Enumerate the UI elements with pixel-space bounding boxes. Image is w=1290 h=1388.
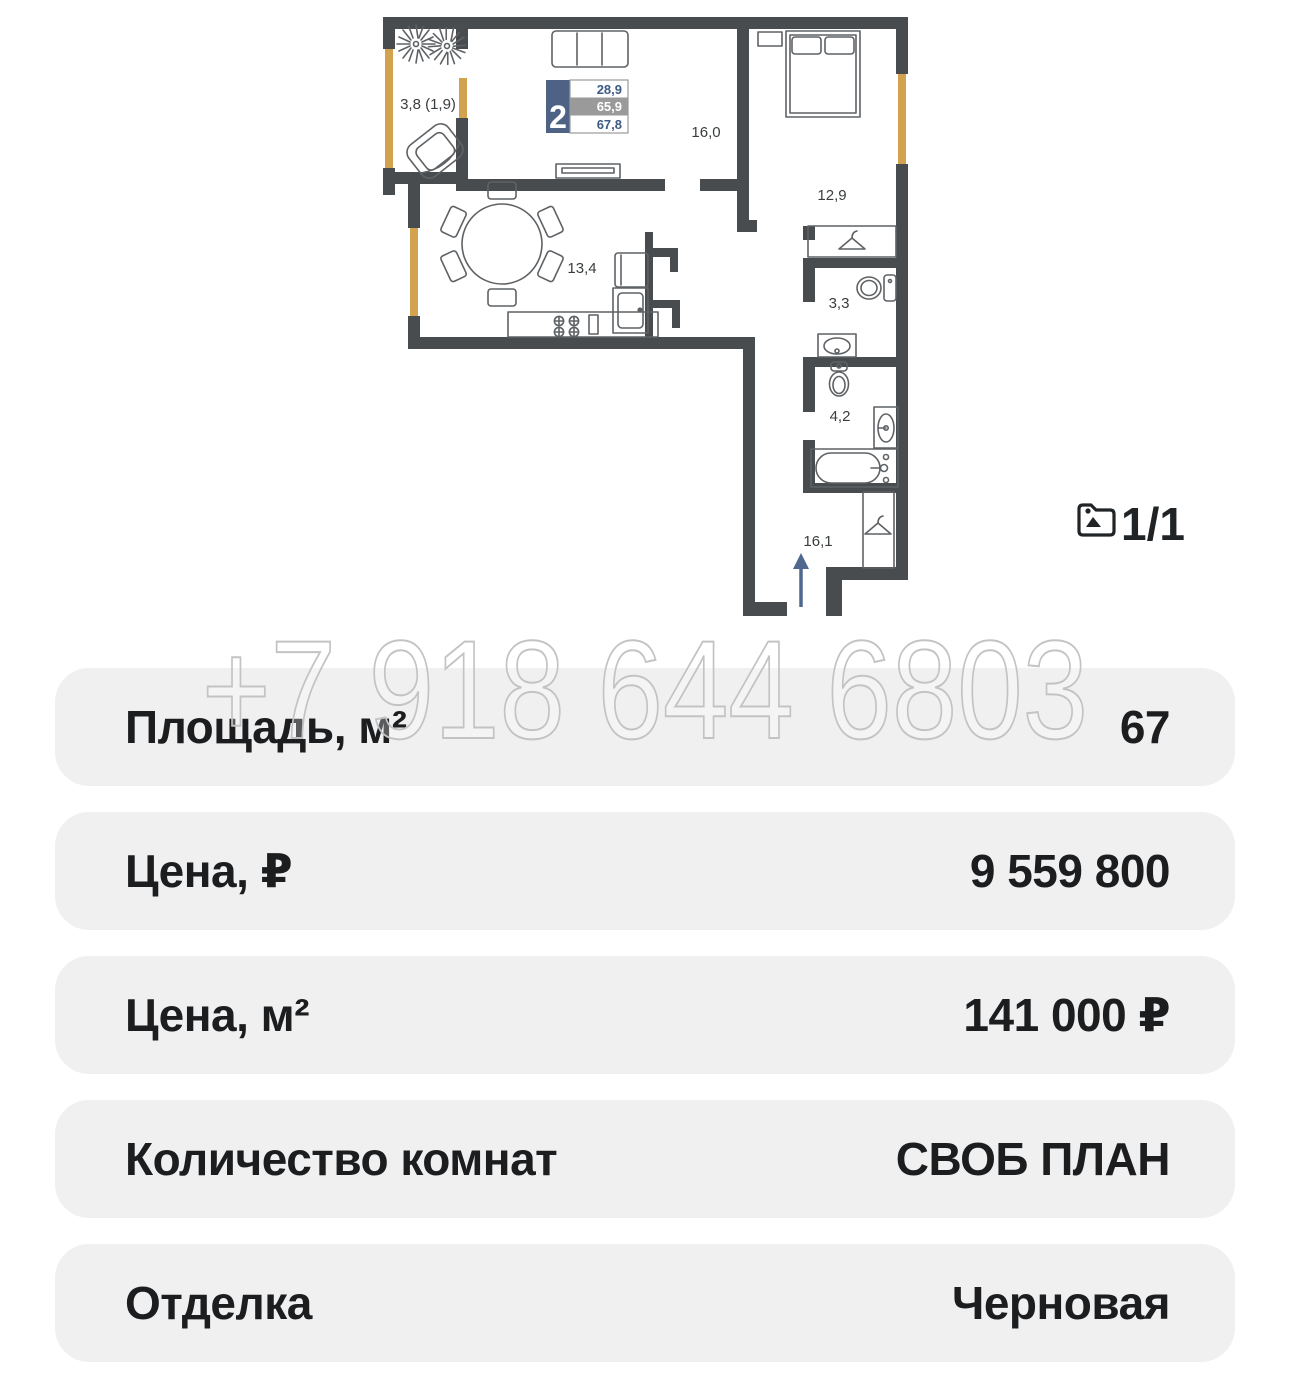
bathtub-icon [811, 449, 898, 487]
detail-label: Цена, ₽ [125, 844, 292, 898]
legend-living-area: 28,9 [597, 82, 622, 97]
window-balcony-divider-icon [459, 78, 467, 118]
pager-label: 1/1 [1121, 498, 1185, 550]
washbasin-2-icon [874, 407, 898, 448]
detail-label: Количество комнат [125, 1132, 557, 1186]
floor-plan-svg: 3,8 (1,9) 16,0 12,9 13,4 3,3 4,2 16,1 2 … [0, 0, 1290, 648]
image-icon [1079, 505, 1114, 535]
detail-value: Черновая [952, 1276, 1170, 1330]
sink-cabinet-icon [613, 288, 648, 333]
window-bedroom-icon [898, 74, 906, 164]
plan-legend: 2 28,9 65,9 67,8 [546, 80, 628, 135]
listing-details: Площадь, м² 67 Цена, ₽ 9 559 800 Цена, м… [55, 668, 1235, 1388]
bed-icon [786, 31, 860, 117]
room-label-balcony: 3,8 (1,9) [400, 96, 456, 113]
sofa-icon [552, 31, 628, 67]
stove-icon [554, 316, 578, 336]
detail-label: Цена, м² [125, 988, 309, 1042]
room-label-kitchen: 13,4 [567, 260, 596, 277]
washbasin-icon [818, 334, 856, 357]
floor-plan-image[interactable]: 3,8 (1,9) 16,0 12,9 13,4 3,3 4,2 16,1 2 … [0, 0, 1290, 648]
entry-closet-icon [863, 492, 894, 568]
wardrobe-icon [808, 226, 896, 257]
detail-value: СВОБ ПЛАН [896, 1132, 1170, 1186]
detail-row-price: Цена, ₽ 9 559 800 [55, 812, 1235, 930]
detail-row-rooms: Количество комнат СВОБ ПЛАН [55, 1100, 1235, 1218]
toilet-2-icon [830, 362, 849, 396]
detail-row-finishing: Отделка Черновая [55, 1244, 1235, 1362]
window-balcony-icon [385, 49, 393, 168]
legend-rooms-count: 2 [549, 99, 567, 135]
image-pager: 1/1 [1079, 498, 1185, 550]
legend-area: 65,9 [597, 99, 622, 114]
detail-label: Отделка [125, 1276, 312, 1330]
room-label-hallway: 16,1 [803, 533, 832, 550]
room-label-living: 16,0 [691, 124, 720, 141]
nightstand-icon [758, 32, 782, 46]
room-label-wc: 4,2 [830, 408, 851, 425]
detail-value: 67 [1120, 700, 1170, 754]
room-label-bedroom: 12,9 [817, 187, 846, 204]
legend-total-area: 67,8 [597, 117, 622, 132]
window-kitchen-icon [410, 228, 418, 316]
detail-label: Площадь, м² [125, 700, 407, 754]
dining-table-icon [440, 182, 564, 306]
detail-value: 141 000 ₽ [963, 988, 1170, 1042]
toilet-icon [857, 275, 896, 301]
detail-row-price-per-m2: Цена, м² 141 000 ₽ [55, 956, 1235, 1074]
fridge-icon [615, 253, 648, 287]
detail-value: 9 559 800 [970, 844, 1170, 898]
room-label-bathroom: 3,3 [829, 295, 850, 312]
entrance-arrow-icon [793, 553, 809, 607]
tv-stand-icon [556, 164, 620, 178]
detail-row-area: Площадь, м² 67 [55, 668, 1235, 786]
